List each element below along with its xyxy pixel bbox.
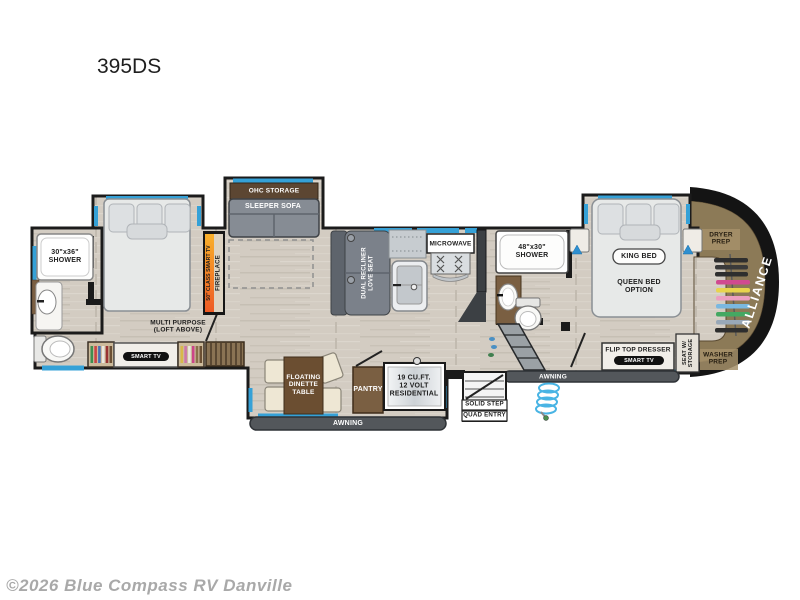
wall-post — [561, 322, 570, 331]
rear-smart-tv-label: SMART TV — [131, 353, 161, 359]
window — [94, 206, 98, 226]
rear-storage-wall — [88, 342, 244, 367]
pillow — [598, 204, 623, 234]
pillow — [620, 225, 660, 240]
dinette-chair — [321, 388, 341, 412]
seat-storage-label: SEAT W/ STORAGE — [681, 339, 693, 368]
mid-shower-label: 48"x30" SHOWER — [516, 244, 549, 260]
front-smart-tv-label: SMART TV — [624, 357, 654, 363]
pillow — [127, 224, 167, 239]
shoes — [488, 353, 494, 357]
awning-entry-label: AWNING — [539, 373, 567, 380]
hose-connector — [544, 416, 549, 421]
faucet-handle — [393, 284, 401, 286]
shoes — [489, 337, 495, 341]
window — [42, 366, 84, 371]
refrigerator-label: 19 CU.FT. 12 VOLT RESIDENTIAL — [390, 374, 439, 397]
wall — [86, 299, 106, 305]
faucet — [497, 294, 503, 296]
flip-top-dresser-label: FLIP TOP DRESSER — [605, 346, 670, 353]
pantry-label: PANTRY — [353, 386, 382, 394]
quad-entry-label: QUAD ENTRY — [463, 413, 506, 420]
floorplan-drawing — [0, 0, 800, 600]
wall — [477, 230, 486, 292]
faucet — [411, 284, 417, 290]
window — [686, 204, 690, 224]
dealer-watermark: ©2026 Blue Compass RV Danville — [6, 576, 292, 596]
ladder-rungs — [211, 343, 241, 365]
nightstand — [570, 229, 589, 252]
window — [465, 228, 477, 233]
shoes — [491, 345, 497, 349]
awning-entry — [504, 371, 679, 382]
sleeper-sofa-label: SLEEPER SOFA — [245, 203, 301, 211]
floorplan-page: 395DS 30"x36" SHOWER OHC STORAGE SLEEPER… — [0, 0, 800, 600]
toilet-bowl — [520, 312, 536, 327]
dinette-label: FLOATING DINETTE TABLE — [286, 374, 320, 396]
rear-shower-label: 30"x36" SHOWER — [49, 249, 82, 265]
loft-note-label: MULTI PURPOSE (LOFT ABOVE) — [150, 320, 206, 335]
faucet — [37, 300, 44, 303]
washer-prep-label: WASHER PREP — [703, 352, 733, 367]
solid-step-label: SOLID STEP — [465, 402, 504, 409]
window — [233, 179, 313, 184]
sink-bowl — [502, 288, 514, 306]
dinette-chair — [265, 360, 286, 383]
toilet-bowl — [50, 341, 70, 357]
utility-coil-hose — [536, 384, 559, 414]
queen-option-label: QUEEN BED OPTION — [617, 279, 660, 295]
pillow — [165, 204, 190, 232]
microwave-label: MICROWAVE — [429, 240, 471, 247]
fireplace-label: FIREPLACE — [215, 255, 222, 291]
floorplan-model-title: 395DS — [97, 55, 161, 79]
loveseat-label: DUAL RECLINER LOVE SEAT — [361, 247, 374, 299]
recliner-knob — [348, 235, 355, 242]
window — [584, 204, 588, 224]
window — [197, 206, 201, 226]
fireplace-tv-label: 50" CLASS SMART TV — [207, 245, 213, 300]
awning-main-label: AWNING — [333, 420, 363, 428]
fridge-hinge — [414, 358, 421, 365]
window — [249, 388, 253, 412]
recliner-knob — [348, 277, 355, 284]
dinette-chair — [265, 387, 286, 411]
king-bed-label: KING BED — [621, 253, 657, 261]
counter — [389, 230, 426, 258]
ohc-storage-label: OHC STORAGE — [249, 187, 299, 194]
dryer-prep-label: DRYER PREP — [709, 232, 733, 247]
